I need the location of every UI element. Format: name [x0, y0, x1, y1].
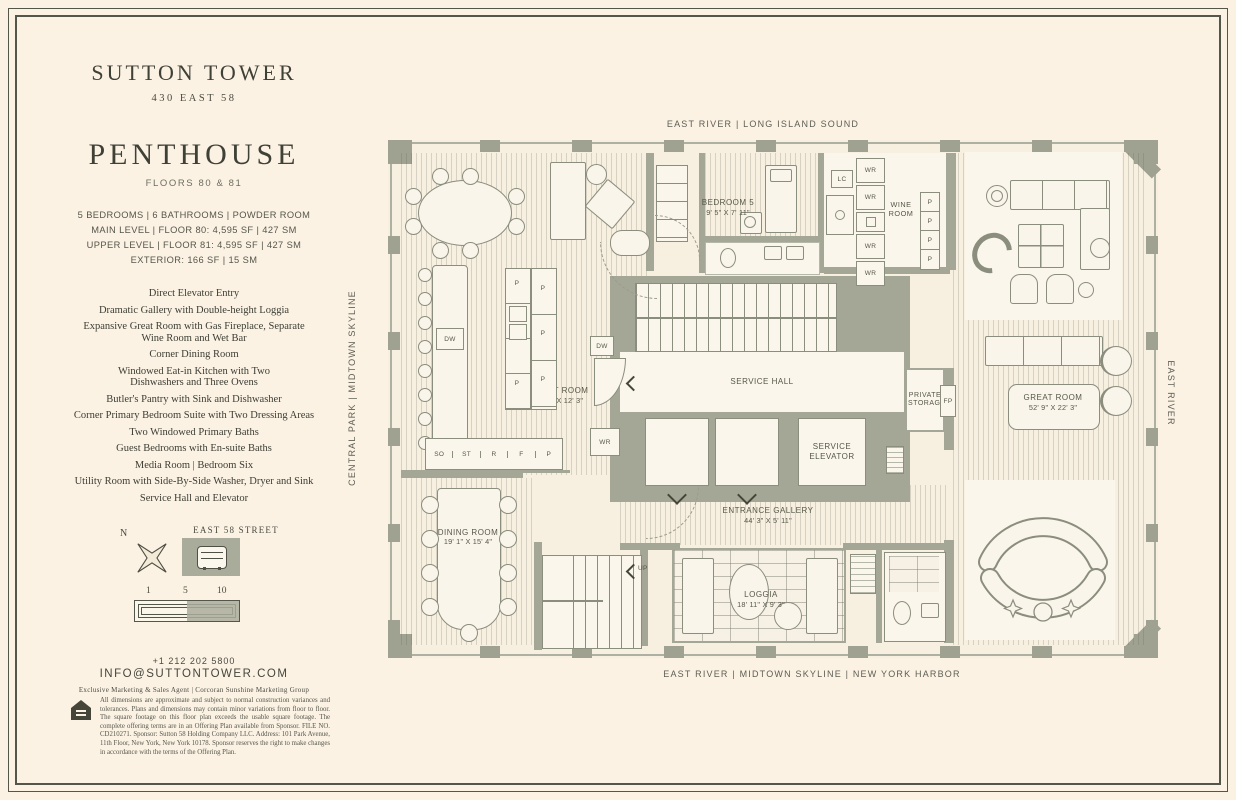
feature-item: Corner Dining Room: [36, 349, 352, 361]
powder-room: [884, 552, 946, 642]
kitchen-island: [432, 265, 468, 452]
elevator: [645, 418, 709, 486]
sink: [764, 246, 782, 260]
fan-chair: [1100, 346, 1132, 376]
wine-ref-label: WR: [865, 243, 876, 250]
scale-ticks: 1 5 10: [134, 586, 238, 596]
chair: [499, 564, 517, 582]
side-table: [1090, 238, 1110, 258]
dishwasher: DW: [590, 336, 614, 356]
north-label: N: [120, 528, 127, 539]
scale-tick: 10: [217, 586, 227, 596]
chair: [499, 496, 517, 514]
feature-item: Direct Elevator Entry: [36, 288, 352, 300]
stat-line: EXTERIOR: 166 SF | 15 SM: [48, 253, 340, 268]
private-storage-label: PRIVATE STORAGE: [908, 392, 942, 409]
linen-closet-label: LC: [838, 176, 847, 183]
compass-icon: [130, 536, 174, 580]
floorplan-sheet: SUTTON TOWER 430 EAST 58 PENTHOUSE FLOOR…: [0, 0, 1236, 800]
cabinet-knob: [866, 217, 876, 227]
unit-stats: 5 BEDROOMS | 6 BATHROOMS | POWDER ROOM M…: [48, 208, 340, 268]
wine-ref-label: WR: [865, 270, 876, 277]
fireplace: FP: [940, 385, 956, 417]
feature-item: Butler's Pantry with Sink and Dishwasher: [36, 394, 352, 406]
loggia: LOGGIA 18' 11" X 9' 3": [672, 548, 846, 643]
wine-ref-label: WR: [599, 439, 610, 446]
fireplace-label: FP: [944, 398, 953, 405]
stair-rail: [543, 600, 603, 602]
dumbwaiter: [886, 446, 904, 474]
agent-line: Exclusive Marketing & Sales Agent | Corc…: [48, 686, 340, 694]
chair: [499, 598, 517, 616]
pantry-label: P: [535, 285, 551, 292]
stool: [418, 412, 432, 426]
wall: [946, 153, 956, 270]
toilet: [893, 601, 911, 625]
wine-rack-label: P: [928, 199, 933, 206]
refrigerator-label: R: [480, 451, 507, 458]
appliance-counter: SO ST R F P: [425, 438, 563, 470]
wet-bar-cabinet: [850, 554, 876, 594]
tiled-wall: [889, 556, 939, 592]
legal-disclaimer: All dimensions are approximate and subje…: [100, 697, 330, 757]
feature-item: Media Room | Bedroom Six: [36, 460, 352, 472]
dishwasher-label: DW: [596, 343, 607, 350]
steam-oven-label: ST: [452, 451, 479, 458]
building-footprint-icon: [197, 546, 227, 569]
pantry-label: P: [535, 330, 551, 337]
wine-rack-label: P: [928, 218, 933, 225]
service-hall: SERVICE HALL: [620, 352, 904, 412]
room-dims: 44' 3" X 5' 11": [698, 516, 838, 526]
barrel-chair: [1046, 274, 1074, 304]
room-name: LOGGIA: [706, 590, 816, 600]
chair: [405, 218, 422, 235]
wine-ref-label: WR: [865, 194, 876, 201]
service-elevator: SERVICE ELEVATOR: [798, 418, 866, 486]
chair: [421, 564, 439, 582]
chair: [432, 168, 449, 185]
room-dims: 19' 1" X 15' 4": [423, 537, 513, 546]
pantry-label: P: [509, 280, 525, 287]
wine-ref: WR: [856, 234, 885, 259]
wine-ref: WR: [590, 428, 620, 456]
private-storage: PRIVATE STORAGE: [905, 368, 945, 432]
chair: [432, 242, 449, 259]
wall: [620, 543, 680, 550]
pilasters-top: [388, 140, 1158, 152]
chair: [421, 598, 439, 616]
up-label: UP: [638, 565, 648, 572]
orientation-top: EAST RIVER | LONG ISLAND SOUND: [563, 119, 963, 129]
room-dims: 52' 9" X 22' 3": [1010, 403, 1096, 413]
room-label-wine-room: WINE ROOM: [884, 200, 918, 218]
building-name: SUTTON TOWER: [48, 60, 340, 86]
wine-ref-label: WR: [865, 167, 876, 174]
scale-tick: 5: [183, 586, 188, 596]
pilasters-bottom: [388, 646, 1158, 658]
chair: [508, 188, 525, 205]
orientation-left: CENTRAL PARK | MIDTOWN SKYLINE: [347, 290, 357, 486]
linen-closet: LC: [831, 170, 853, 188]
floors-subtitle: FLOORS 80 & 81: [48, 178, 340, 189]
feature-item: Service Hall and Elevator: [36, 493, 352, 505]
sofa: [985, 336, 1103, 366]
stair-rail: [636, 317, 836, 319]
chair: [421, 496, 439, 514]
feature-item: Guest Bedrooms with En-suite Baths: [36, 443, 352, 455]
chair: [462, 168, 479, 185]
floor-plan: SERVICE HALL SERVICE ELEVATOR PRIVATE ST…: [388, 140, 1158, 658]
pantry-label: P: [535, 376, 551, 383]
wall: [534, 542, 542, 650]
room-label-loggia: LOGGIA 18' 11" X 9' 3": [706, 590, 816, 610]
dining-table: [437, 488, 501, 630]
chair: [460, 624, 478, 642]
stool: [418, 316, 432, 330]
pilasters-left: [388, 140, 400, 658]
room-label-great-room-east: GREAT ROOM 52' 9" X 22' 3": [1010, 393, 1096, 413]
orientation-right: EAST RIVER: [1166, 360, 1176, 425]
feature-item: Two Windowed Primary Baths: [36, 427, 352, 439]
info-column: SUTTON TOWER 430 EAST 58 PENTHOUSE FLOOR…: [48, 0, 340, 800]
pilasters-right: [1146, 140, 1158, 658]
stool: [418, 364, 432, 378]
toilet: [720, 248, 736, 268]
room-name: GREAT ROOM: [1010, 393, 1096, 403]
chair: [508, 218, 525, 235]
building-address: 430 EAST 58: [48, 93, 340, 104]
orientation-bottom: EAST RIVER | MIDTOWN SKYLINE | NEW YORK …: [612, 669, 1012, 679]
oven: [509, 324, 527, 340]
scale-tick: 1: [146, 586, 151, 596]
room-label-dining: DINING ROOM 19' 1" X 15' 4": [423, 528, 513, 546]
site-map: [182, 538, 240, 576]
wine-rack: P: [920, 249, 940, 270]
sectional-sofa: [1010, 180, 1110, 210]
side-table: [1078, 282, 1094, 298]
stat-line: 5 BEDROOMS | 6 BATHROOMS | POWDER ROOM: [48, 208, 340, 223]
wine-ref: WR: [856, 261, 885, 286]
counter-line: [418, 470, 570, 473]
barrel-chair: [1010, 274, 1038, 304]
oven: [509, 306, 527, 322]
wine-rack: P: [920, 211, 940, 232]
room-name: BEDROOM 5: [683, 198, 773, 208]
wall: [876, 550, 882, 643]
cabinet: [856, 212, 885, 232]
room-label-gallery: ENTRANCE GALLERY 44' 3" X 5' 11": [698, 506, 838, 526]
stool: [418, 340, 432, 354]
scale-bar-fill: [187, 601, 239, 621]
chair: [405, 188, 422, 205]
room-label-bedroom5: BEDROOM 5 9' 5" X 7' 11": [683, 198, 773, 218]
wine-rack: P: [920, 192, 940, 213]
feature-item: Dramatic Gallery with Double-height Logg…: [36, 305, 352, 317]
dishwasher: DW: [436, 328, 464, 350]
stool: [418, 292, 432, 306]
dishwasher-label: DW: [444, 336, 455, 343]
street-label: EAST 58 STREET: [176, 525, 296, 535]
coffee-table: [1018, 224, 1064, 268]
feature-item: Windowed Eat-in Kitchen with Two Dishwas…: [36, 366, 352, 389]
page-title: PENTHOUSE: [48, 138, 340, 172]
wine-ref: WR: [856, 158, 885, 183]
room-dims: 9' 5" X 7' 11": [683, 208, 773, 218]
sink: [921, 603, 939, 618]
wine-rack-label: P: [928, 237, 933, 244]
equal-housing-icon: [70, 699, 92, 721]
wall: [843, 543, 950, 550]
room-name: ENTRANCE GALLERY: [698, 506, 838, 516]
feature-item: Utility Room with Side-By-Side Washer, D…: [36, 476, 352, 488]
elevator: [715, 418, 779, 486]
sofa: [550, 162, 586, 240]
shower: [826, 195, 854, 235]
feature-item: Corner Primary Bedroom Suite with Two Dr…: [36, 410, 352, 422]
wine-rack: P: [920, 230, 940, 251]
stat-line: UPPER LEVEL | FLOOR 81: 4,595 SF | 427 S…: [48, 238, 340, 253]
wine-rack-label: P: [928, 256, 933, 263]
service-elevator-label: SERVICE ELEVATOR: [807, 442, 857, 462]
feature-item: Expansive Great Room with Gas Fireplace,…: [36, 321, 352, 344]
room-dims: 18' 11" X 9' 3": [706, 600, 816, 610]
oval-dining-table: [418, 180, 512, 246]
stair-upper: [635, 283, 837, 352]
pillow: [770, 169, 792, 182]
speed-oven-label: SO: [426, 451, 452, 458]
wine-ref: WR: [856, 185, 885, 210]
feature-list: Direct Elevator Entry Dramatic Gallery w…: [36, 288, 352, 509]
room-name: DINING ROOM: [423, 528, 513, 537]
contact-email: INFO@SUTTONTOWER.COM: [48, 668, 340, 680]
chair: [462, 242, 479, 259]
service-hall-label: SERVICE HALL: [730, 377, 793, 387]
shower-drain: [835, 210, 845, 220]
sink: [786, 246, 804, 260]
fan-chair: [1100, 386, 1132, 416]
contact-phone: +1 212 202 5800: [48, 656, 340, 666]
scale-bar: [134, 600, 240, 622]
pantry-label: P: [535, 451, 562, 458]
round-lamp-inner: [991, 190, 1003, 202]
stool: [418, 268, 432, 282]
stat-line: MAIN LEVEL | FLOOR 80: 4,595 SF | 427 SM: [48, 223, 340, 238]
stool: [418, 388, 432, 402]
pantry-label: P: [509, 380, 525, 387]
freezer-label: F: [507, 451, 534, 458]
curved-sofa-group: [968, 482, 1118, 642]
